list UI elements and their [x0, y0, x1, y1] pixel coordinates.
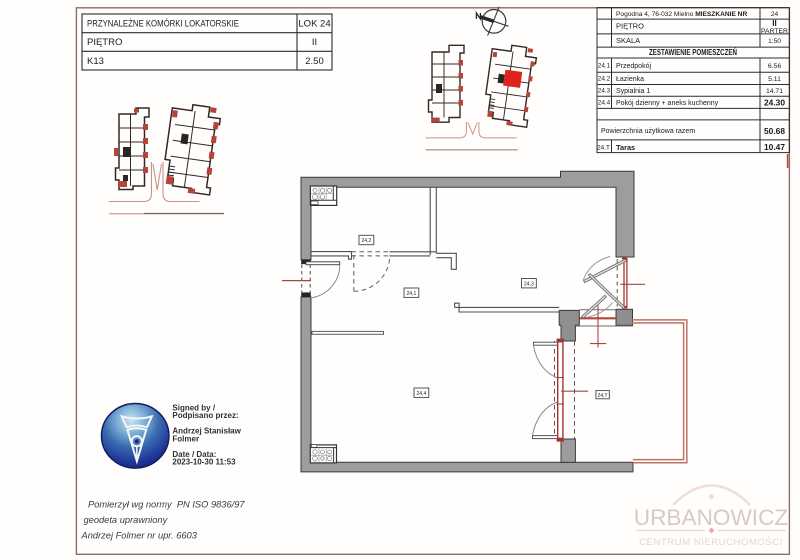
svg-text:URBANOWICZ: URBANOWICZ [634, 505, 789, 530]
svg-text:Pomierzył wg normy PN ISO 983: Pomierzył wg normy PN ISO 9836/97 [88, 500, 245, 510]
svg-text:PIĘTRO: PIĘTRO [616, 22, 644, 31]
svg-text:Podpisano przez:: Podpisano przez: [172, 411, 238, 420]
svg-text:1:50: 1:50 [768, 38, 781, 45]
svg-text:geodeta uprawniony: geodeta uprawniony [84, 515, 169, 525]
svg-text:ZESTAWIENIE POMIESZCZEŃ: ZESTAWIENIE POMIESZCZEŃ [649, 48, 737, 57]
svg-text:24.3: 24.3 [598, 88, 611, 95]
svg-text:24,1: 24,1 [407, 291, 417, 297]
svg-text:SKALA: SKALA [616, 36, 640, 45]
svg-text:Pogodna 4, 76-032 Mielno MIESZ: Pogodna 4, 76-032 Mielno MIESZKANIE NR [616, 11, 747, 18]
svg-text:24.2: 24.2 [598, 76, 611, 83]
svg-text:PARTER: PARTER [761, 28, 788, 35]
svg-text:5.11: 5.11 [768, 76, 781, 83]
svg-text:6.56: 6.56 [768, 63, 781, 70]
svg-text:24,4: 24,4 [417, 391, 427, 397]
svg-text:24: 24 [771, 11, 779, 18]
svg-text:50.68: 50.68 [764, 126, 785, 136]
svg-text:24,3: 24,3 [524, 281, 534, 287]
svg-text:CENTRUM NIERUCHOMOŚCI: CENTRUM NIERUCHOMOŚCI [639, 536, 783, 548]
svg-text:PIĘTRO: PIĘTRO [87, 37, 122, 48]
svg-text:II: II [312, 37, 317, 48]
svg-text:Andrzej Folmer nr upr. 6603: Andrzej Folmer nr upr. 6603 [81, 531, 198, 541]
svg-text:24,T: 24,T [598, 393, 608, 399]
svg-text:24,2: 24,2 [362, 238, 372, 244]
svg-text:PRZYNALEŻNE KOMÓRKI LOKATORSKI: PRZYNALEŻNE KOMÓRKI LOKATORSKIE [87, 19, 239, 30]
svg-text:24.30: 24.30 [764, 97, 785, 107]
svg-text:Folmer: Folmer [172, 434, 199, 443]
svg-text:Przedpokój: Przedpokój [616, 63, 651, 70]
svg-text:24.1: 24.1 [598, 63, 611, 70]
svg-text:2023-10-30 11:53: 2023-10-30 11:53 [172, 458, 236, 467]
svg-text:14.71: 14.71 [766, 88, 783, 95]
svg-text:10.47: 10.47 [764, 142, 785, 152]
svg-text:II: II [772, 19, 776, 28]
svg-text:LOK 24: LOK 24 [298, 19, 330, 30]
svg-text:Powierzchnia użytkowa razem: Powierzchnia użytkowa razem [601, 128, 695, 135]
svg-text:Pokój dzienny + aneks kuchenny: Pokój dzienny + aneks kuchenny [616, 100, 719, 107]
svg-text:K13: K13 [87, 56, 104, 67]
svg-text:Sypialnia 1: Sypialnia 1 [616, 88, 650, 95]
svg-text:Taras: Taras [616, 143, 635, 152]
svg-text:2.50: 2.50 [305, 56, 324, 67]
svg-text:Łazienka: Łazienka [616, 76, 644, 83]
svg-text:24.4: 24.4 [598, 100, 611, 107]
svg-text:24.T: 24.T [597, 145, 610, 152]
